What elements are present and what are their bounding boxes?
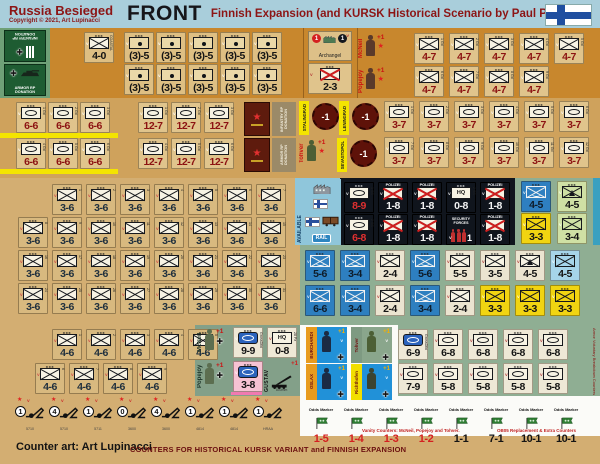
vanity-richthofen[interactable]: Richthofen+1V✚ — [351, 364, 392, 400]
counter-5-6[interactable]: xxxV5-6 — [305, 250, 335, 281]
soviet-flag-icon — [454, 417, 469, 429]
counter-3-7[interactable]: xxxV5 Gd3-7 — [524, 101, 554, 132]
odds-marker-7-1[interactable]: Odds Marker7-1 — [480, 398, 512, 431]
counter-4-6[interactable]: xxxV74-6 — [69, 363, 99, 394]
infantry-symbol — [520, 290, 540, 302]
kursk-vanity-popejoy: Popejoy+1✚ — [197, 361, 223, 393]
armor-symbol — [564, 142, 584, 154]
inf-46-row2: xxxV64-6xxxV74-6xxxV84-6xxxV94-6 — [35, 363, 167, 394]
counter-4-5[interactable]: xxxV4-5 — [550, 250, 580, 281]
infantry-symbol — [380, 255, 400, 267]
odds-marker-10-1[interactable]: Odds Marker10-1 — [515, 398, 547, 431]
counter-artillery[interactable]: ★V14814 — [184, 397, 216, 432]
finnish-status-cell[interactable]: AVAILABLERAIL — [296, 179, 341, 245]
combat-value: 3-7 — [560, 155, 588, 167]
vanity-tohver[interactable]: Tohver+1V✚ — [351, 327, 392, 363]
vanity-popejoy[interactable]: Popejoy+1★ — [358, 66, 384, 98]
counter-3-3[interactable]: xxxV3-3 — [521, 213, 551, 244]
counter-4-6[interactable]: xxxV44-6 — [154, 329, 184, 360]
counter-6-8[interactable]: xxxV6-8 — [503, 329, 533, 360]
counter-1-8[interactable]: POLIZEIV1-8 — [412, 214, 442, 245]
victory-marker: V — [197, 398, 200, 403]
odds-value: 1-1 — [445, 434, 477, 445]
unit-id: 15 — [282, 222, 286, 226]
guards-47-row2: xxxV6 Gd4-7xxxV7 Gd4-7xxxV8 Gd4-7xxxV9 G… — [414, 66, 549, 97]
counter-3-6[interactable]: xxxV203-6 — [154, 250, 184, 281]
counter-6-6[interactable]: xxxV5 Gd6-6 — [48, 138, 78, 169]
counter-6-6[interactable]: xxxV6-6 — [305, 285, 335, 316]
combat-value: 3-6 — [19, 268, 47, 280]
gold-bar-icon — [251, 124, 263, 126]
counter-12-7[interactable]: xxxV4 Gd12-7 — [138, 138, 168, 169]
ss-row1: xxxV1 SS8-9POLIZEIV1-8POLIZEIV1-8xxxVHQ2… — [344, 182, 510, 213]
counter-3-5[interactable]: xxxV(3)-5 — [220, 64, 250, 95]
counter-3-7[interactable]: xxxV3 Gd3-7 — [454, 101, 484, 132]
combat-value: 3-7 — [490, 119, 518, 131]
unit-id: 14 — [248, 222, 252, 226]
counter-2-4[interactable]: xxxV2-4 — [375, 250, 405, 281]
armor-symbol — [238, 366, 258, 378]
counter-2-4[interactable]: xxxV2-4 — [445, 285, 475, 316]
counter-3-4[interactable]: xxxV3-4 — [410, 285, 440, 316]
counter-3-7[interactable]: xxxV1 Gd3-7 — [384, 101, 414, 132]
infantry-symbol — [227, 189, 247, 201]
counter-3-6[interactable]: xxxV33-6 — [120, 184, 150, 215]
inf-36-row4: xxxV243-6xxxV253-6xxxV263-6xxxV273-6xxxV… — [18, 283, 286, 314]
caliber-label: 800mm — [276, 388, 287, 392]
counter-1-8[interactable]: POLIZEIV1-8 — [480, 214, 510, 245]
replacement-value: 0 — [117, 406, 128, 417]
armor-symbol — [53, 107, 73, 119]
counter-4-5[interactable]: xxxV4-5 — [557, 181, 587, 212]
counter-3-6[interactable]: xxxV183-6 — [86, 250, 116, 281]
soviet-flag-icon — [349, 417, 364, 429]
divider-1 — [303, 28, 304, 98]
counter-3-6[interactable]: xxxV313-6 — [256, 283, 286, 314]
counter-3-6[interactable]: xxxV23-6 — [86, 184, 116, 215]
counter-3-4[interactable]: xxxV3-4 — [557, 213, 587, 244]
counter-5-8[interactable]: xxxV5-8 — [538, 363, 568, 394]
counter-4-7[interactable]: xxxV9 Gd4-7 — [519, 66, 549, 97]
infantry-crossed-symbol — [485, 187, 505, 199]
unit-id: 5 Gd — [550, 106, 554, 114]
counter-3-5[interactable]: xxxV(3)-5 — [188, 32, 218, 63]
counter-4-7[interactable]: xxxV8 Gd4-7 — [484, 66, 514, 97]
siege-marker[interactable]: -1 — [351, 103, 377, 131]
guards-47-row1: xxxV1 Gd4-7xxxV2 Gd4-7xxxV3 Gd4-7xxxV4 G… — [414, 33, 584, 64]
unit-id: 21 — [214, 255, 218, 259]
vanity-name: Richthofen — [354, 371, 359, 394]
vanity-tohver[interactable]: Tohver+1★ — [299, 138, 335, 170]
combat-value: 4-7 — [415, 84, 443, 96]
rp-donation-counter[interactable]: ✚INFANTRY RP DONATION — [4, 30, 46, 62]
red-star-icon: ★ — [253, 113, 262, 122]
odds-marker-1-1[interactable]: Odds Marker1-1 — [445, 398, 477, 431]
counter-5-6[interactable]: xxxV5-6 — [410, 250, 440, 281]
gold-bar-icon — [251, 160, 263, 162]
naval-infantry-symbol — [415, 290, 435, 302]
combat-value: 4-6 — [104, 381, 132, 393]
combat-value: 12-7 — [205, 156, 233, 168]
combat-value: 4-7 — [485, 84, 513, 96]
counter-5-5[interactable]: xxxV5-5 — [445, 250, 475, 281]
counter-3-6[interactable]: xxxV283-6 — [154, 283, 184, 314]
red-star-icon: ★ — [319, 149, 325, 155]
combat-value: 3-6 — [19, 235, 47, 247]
infantry-symbol — [91, 288, 111, 300]
counter-3-5[interactable]: xxxV(3)-5 — [124, 32, 154, 63]
counter-3-6[interactable]: xxxV73-6 — [256, 184, 286, 215]
infantry-symbol — [193, 255, 213, 267]
sheet-subtitle: Finnish Expansion (and KURSK Historical … — [211, 8, 588, 20]
counter-7-9[interactable]: xxxV7-9 — [398, 363, 428, 394]
counter-6-9[interactable]: xxxVGrossDtld6-9 — [398, 329, 428, 360]
unit-id: 18 — [112, 255, 116, 259]
combat-value: 6-6 — [81, 120, 109, 132]
infantry-symbol — [454, 38, 474, 50]
counter-3-6[interactable]: xxxV173-6 — [52, 250, 82, 281]
combat-value: 3-6 — [189, 301, 217, 313]
infantry-symbol — [454, 71, 474, 83]
counter-3-3[interactable]: xxxV3-3 — [480, 285, 510, 316]
combat-value: 3-6 — [223, 235, 251, 247]
counter-4-6[interactable]: xxxV84-6 — [103, 363, 133, 394]
counter-3-6[interactable]: xxxV123-6 — [154, 217, 184, 248]
gear-icon: -1 — [312, 103, 339, 130]
counter-3-6[interactable]: xxxV53-6 — [188, 184, 218, 215]
odds-value: 10-1 — [550, 434, 582, 445]
counter-3-6[interactable]: xxxV243-6 — [18, 283, 48, 314]
counter-3-6[interactable]: xxxV223-6 — [222, 250, 252, 281]
counter-3-5[interactable]: xxxV(3)-5 — [220, 32, 250, 63]
counter-3-6[interactable]: xxxV213-6 — [188, 250, 218, 281]
counter-artillery[interactable]: ★V14814 — [218, 397, 250, 432]
combat-value: 3-6 — [87, 268, 115, 280]
unit-id: 1 Gd — [164, 107, 168, 115]
counter-3-3[interactable]: xxxV3-3 — [515, 285, 545, 316]
counter-3-5[interactable]: xxxV(3)-5 — [124, 64, 154, 95]
brand-block: Russia Besieged Copyright © 2021, Art Lu… — [0, 4, 127, 24]
counter-3-6[interactable]: xxxV43-6 — [154, 184, 184, 215]
odds-value: 7-1 — [480, 434, 512, 445]
unit-id: 4 — [180, 334, 184, 336]
bonus-label: +1 — [383, 329, 390, 335]
counter-9-9[interactable]: xxxVGrossDtld9-9 — [233, 327, 263, 358]
counter-12-7[interactable]: xxxV1 Gd12-7 — [138, 102, 168, 133]
counter-3-7[interactable]: xxxV8 Gd3-7 — [419, 137, 449, 168]
counter-4-7[interactable]: xxxV3 Gd4-7 — [484, 33, 514, 64]
vanity-name-strip: BURCHARDI — [306, 327, 317, 363]
breakdown-row2: xxxV7-9xxxV5-8xxxV5-8xxxV5-8xxxV5-8 — [398, 363, 568, 394]
counter-3-3[interactable]: xxxV3-3 — [550, 285, 580, 316]
donation-counter[interactable]: ★ARMOR RP DONATION — [244, 138, 296, 172]
vanity-figure-cell: +1V✚ — [317, 364, 347, 400]
counter-2-3[interactable]: xxxV2-3 — [308, 63, 352, 94]
tank-top-icon — [193, 37, 213, 49]
counter-12-7[interactable]: xxxV6 Gd12-7 — [204, 138, 234, 169]
armor-symbol — [238, 332, 258, 344]
counter-gustav[interactable]: GUSTAV+1800mm — [264, 361, 298, 392]
unit-id: 4 Gd — [42, 143, 46, 151]
unit-id: 1 Gd — [410, 106, 414, 114]
siege-row2: Tohver+1★SEVASTOPOL-1 — [299, 138, 375, 172]
counter-6-8[interactable]: xxxV6-8 — [538, 329, 568, 360]
counter-3-7[interactable]: xxxV9 Gd3-7 — [454, 137, 484, 168]
soviet-flag-icon — [384, 417, 399, 429]
counter-3-6[interactable]: xxxV273-6 — [120, 283, 150, 314]
counter-4-5[interactable]: xxxV4-5 — [521, 181, 551, 212]
tank-top-icon — [257, 69, 277, 81]
counter-0-8[interactable]: xxxVHQ28 Pz0-8 — [267, 327, 297, 358]
replacement-value: 4 — [151, 406, 162, 417]
counter-3-6[interactable]: xxxV133-6 — [188, 217, 218, 248]
unit-id: 5711 — [82, 427, 114, 431]
counter-3-6[interactable]: xxxV113-6 — [120, 217, 150, 248]
counter-1-8[interactable]: POLIZEIV1-8 — [378, 214, 408, 245]
counter-3-5[interactable]: xxxV(3)-5 — [156, 64, 186, 95]
counter-artillery[interactable]: ★V1HRAA — [252, 397, 284, 432]
combat-value: 6-6 — [49, 120, 77, 132]
counter-3-6[interactable]: xxxV153-6 — [256, 217, 286, 248]
vanity-name: Tohver — [299, 138, 305, 168]
counter-3-5[interactable]: xxxV(3)-5 — [252, 32, 282, 63]
city-strip-stalingrad: STALINGRAD — [299, 101, 309, 135]
counter-3-6[interactable]: xxxV303-6 — [222, 283, 252, 314]
counter-3-7[interactable]: xxxV6 Gd3-7 — [559, 101, 589, 132]
counter-3-5[interactable]: xxxV(3)-5 — [188, 64, 218, 95]
german-cross-icon: ✚ — [16, 49, 23, 56]
infantry-symbol — [227, 222, 247, 234]
vanity-name: Tohver — [354, 338, 359, 352]
counter-4-7[interactable]: xxxV4 Gd4-7 — [519, 33, 549, 64]
counter-3-6[interactable]: xxxV83-6 — [18, 217, 48, 248]
counter-4-7[interactable]: xxxV6 Gd4-7 — [414, 66, 444, 97]
odds-marker-label: Odds Marker — [519, 407, 543, 412]
counter-3-4[interactable]: xxxV3-4 — [340, 285, 370, 316]
bonus-label: +1 — [318, 140, 325, 146]
counter-6-6[interactable]: xxxV1 Gd6-6 — [16, 102, 46, 133]
vanity-mcneil[interactable]: McNeil+1★ — [358, 33, 384, 65]
counter-5-8[interactable]: xxxV5-8 — [468, 363, 498, 394]
combat-value: 3-7 — [385, 155, 413, 167]
bonus-label: +1 — [377, 35, 384, 41]
donation-counter[interactable]: ★INFANTRY RP DONATION — [244, 102, 296, 136]
counter-4-6[interactable]: xxxV14-6 — [52, 329, 82, 360]
unit-id: 30 — [248, 288, 252, 292]
counter-1-8[interactable]: POLIZEIV1-8 — [378, 182, 408, 213]
combat-value: 3-6 — [121, 301, 149, 313]
finland-flag-icon — [313, 199, 328, 209]
counter-archangel[interactable]: 11VArchangel — [308, 31, 352, 61]
odds-marker-label: Odds Marker — [484, 407, 508, 412]
vanity-popejoy[interactable]: Popejoy+1✚ — [197, 361, 223, 393]
armor-symbol — [543, 334, 563, 346]
unit-id: 4814 — [184, 427, 216, 431]
guards-127-row1: xxxV1 Gd12-7xxxV2 Gd12-7xxxV3 Gd12-7 — [138, 102, 234, 133]
combat-value: 4-6 — [155, 347, 183, 359]
odds-marker-1-5[interactable]: Odds Marker1-5 — [305, 398, 337, 431]
finnish-armor-row1: xxxV(3)-5xxxV(3)-5xxxV(3)-5xxxV(3)-5xxxV… — [124, 32, 282, 63]
counter-artillery[interactable]: ★V15711 — [82, 397, 114, 432]
combat-value: (3)-5 — [189, 82, 217, 94]
odds-marker-10-1[interactable]: Odds Marker10-1 — [550, 398, 582, 431]
counter-3-7[interactable]: xxxV7 Gd3-7 — [384, 137, 414, 168]
counter-6-6[interactable]: xxxV6 Gd6-6 — [80, 138, 110, 169]
unit-id: 5 Gd — [580, 38, 584, 46]
counter-artillery[interactable]: ★V43600 — [150, 397, 182, 432]
combat-value: 1-8 — [379, 200, 407, 212]
counter-6-6[interactable]: xxxV2 Gd6-6 — [48, 102, 78, 133]
combat-value: 3-6 — [223, 268, 251, 280]
counter-3-7[interactable]: xxxV4 Gd3-7 — [489, 101, 519, 132]
vanity-mcneil[interactable]: McNeil+1✚ — [197, 327, 223, 359]
counter-artillery[interactable]: ★V15710 — [14, 397, 46, 432]
mountain-infantry-symbol — [520, 255, 540, 267]
counter-5-8[interactable]: xxxV5-8 — [503, 363, 533, 394]
combat-value: 9-9 — [234, 345, 262, 357]
unit-id: 6 Gd — [440, 71, 444, 79]
infantry-symbol — [142, 368, 162, 380]
soviet-flag-icon — [419, 417, 434, 429]
counter-3-6[interactable]: xxxV253-6 — [52, 283, 82, 314]
unit-id: 3 — [146, 334, 150, 336]
counter-3-6[interactable]: xxxV93-6 — [52, 217, 82, 248]
combat-value: 3-7 — [525, 155, 553, 167]
infantry-symbol — [40, 368, 60, 380]
counter-4-7[interactable]: xxxV1 Gd4-7 — [414, 33, 444, 64]
combat-value: 3-5 — [481, 268, 509, 280]
railgun-art: +1800mm — [270, 361, 298, 392]
unit-id: 3600 — [116, 427, 148, 431]
counter-artillery[interactable]: ★V03600 — [116, 397, 148, 432]
soldier-figure-icon — [205, 334, 214, 350]
vanity-oslax[interactable]: OSLAX+1V✚ — [306, 364, 347, 400]
tank-top-icon — [129, 69, 149, 81]
counter-12-7[interactable]: xxxV3 Gd12-7 — [204, 102, 234, 133]
siege-marker[interactable]: -1 — [311, 103, 337, 131]
combat-value: 3-6 — [87, 202, 115, 214]
counter-1-8[interactable]: POLIZEIV1-8 — [480, 182, 510, 213]
counter-6-8[interactable]: xxxV6-8 — [468, 329, 498, 360]
counter-0-8[interactable]: xxxVHQ2 SS0-8 — [446, 182, 476, 213]
counter-12-7[interactable]: xxxV2 Gd12-7 — [171, 102, 201, 133]
counter-3-8[interactable]: xxxV3-8 — [233, 361, 263, 392]
counter-4-6[interactable]: xxxV34-6 — [120, 329, 150, 360]
unit-id: 8 Gd — [445, 142, 449, 150]
officer-figure-icon — [322, 373, 331, 389]
counter-4-7[interactable]: xxxV2 Gd4-7 — [449, 33, 479, 64]
odds-marker-1-4[interactable]: Odds Marker1-4 — [340, 398, 372, 431]
armor-symbol — [543, 368, 563, 380]
red-star-counter: ★ — [244, 138, 270, 172]
unit-id: 5710 — [48, 427, 80, 431]
counter-3-6[interactable]: xxxV103-6 — [86, 217, 116, 248]
allied-row1: xxxV4-5xxxV4-5 — [521, 181, 587, 212]
counter-3-6[interactable]: xxxV193-6 — [120, 250, 150, 281]
counter-5-8[interactable]: xxxV5-8 — [433, 363, 463, 394]
counter-security-forces[interactable]: SECURITY FORCESV1 — [446, 214, 476, 245]
counter-2-4[interactable]: xxxV2-4 — [375, 285, 405, 316]
counter-artillery[interactable]: ★V45710 — [48, 397, 80, 432]
counter-3-6[interactable]: xxxV143-6 — [222, 217, 252, 248]
counter-6-6[interactable]: xxxV3 Gd6-6 — [80, 102, 110, 133]
victory-marker: V — [385, 338, 388, 343]
counter-1-8[interactable]: POLIZEIV1-8 — [412, 182, 442, 213]
counter-12-7[interactable]: xxxV5 Gd12-7 — [171, 138, 201, 169]
city-label: LENINGRAD — [342, 106, 347, 131]
unit-id: 2 — [112, 334, 116, 336]
infantry-symbol — [559, 38, 579, 50]
armor-symbol — [529, 106, 549, 118]
armor-symbol — [508, 334, 528, 346]
odds-value: 10-1 — [515, 434, 547, 445]
counter-3-6[interactable]: xxxV163-6 — [18, 250, 48, 281]
armor-symbol — [85, 107, 105, 119]
counter-3-7[interactable]: xxxV10 Gd3-7 — [489, 137, 519, 168]
infantry-symbol — [23, 255, 43, 267]
finland-flag-icon — [545, 4, 592, 26]
counter-4-6[interactable]: xxxV24-6 — [86, 329, 116, 360]
counter-3-6[interactable]: xxxV263-6 — [86, 283, 116, 314]
counter-4-6[interactable]: xxxV94-6 — [137, 363, 167, 394]
counter-3-7[interactable]: xxxV11 Gd3-7 — [524, 137, 554, 168]
counter-3-5[interactable]: xxxV(3)-5 — [252, 64, 282, 95]
armor-symbol — [403, 334, 423, 346]
vanity-burchardi[interactable]: BURCHARDI+1V✚ — [306, 327, 347, 363]
siege-marker[interactable]: -1 — [349, 140, 375, 168]
odds-marker-1-2[interactable]: Odds Marker1-2 — [410, 398, 442, 431]
combat-value: 3-4 — [558, 231, 586, 243]
vanity-name-strip: OSLAX — [306, 364, 317, 400]
infantry-symbol — [261, 222, 281, 234]
combat-value: 2-4 — [376, 303, 404, 315]
counter-4-6[interactable]: xxxV64-6 — [35, 363, 65, 394]
odds-marker-1-3[interactable]: Odds Marker1-3 — [375, 398, 407, 431]
counter-6-8[interactable]: xxxV6-8 — [433, 329, 463, 360]
counter-3-5[interactable]: xxxV(3)-5 — [156, 32, 186, 63]
unit-id: 4 Gd — [515, 106, 519, 114]
soldier-figure-icon — [307, 145, 316, 161]
counter-3-6[interactable]: xxxV293-6 — [188, 283, 218, 314]
replacement-value: 1 — [185, 406, 196, 417]
counter-6-8[interactable]: xxxV2 SS6-8 — [344, 214, 374, 245]
counter-3-6[interactable]: xxxV63-6 — [222, 184, 252, 215]
rp-donation-counter[interactable]: ✚ARMOR RP DONATION — [4, 64, 46, 96]
armor-symbol — [349, 187, 369, 199]
counter-3-5[interactable]: xxxV3-5 — [480, 250, 510, 281]
armor-symbol — [143, 143, 163, 155]
counter-3-4[interactable]: xxxV3-4 — [340, 250, 370, 281]
counter-4-7[interactable]: xxxV7 Gd4-7 — [449, 66, 479, 97]
vanity-grid-row1: BURCHARDI+1V✚Tohver+1V✚ — [306, 327, 392, 363]
counter-6-6[interactable]: xxxV4 Gd6-6 — [16, 138, 46, 169]
combat-value: 4-0 — [85, 50, 113, 62]
officer-figure-icon — [367, 336, 376, 352]
victory-marker: V — [346, 33, 349, 38]
armor-symbol — [424, 106, 444, 118]
counter-4-0[interactable]: xxxVCOASTAL4-0 — [84, 32, 114, 63]
counter-3-7[interactable]: xxxV2 Gd3-7 — [419, 101, 449, 132]
unit-id: 23 — [282, 255, 286, 259]
counter-3-6[interactable]: xxxV13-6 — [52, 184, 82, 215]
armor-symbol — [494, 106, 514, 118]
counter-4-5[interactable]: xxxV4-5 — [515, 250, 545, 281]
counter-3-6[interactable]: xxxV233-6 — [256, 250, 286, 281]
counter-8-9[interactable]: xxxV1 SS8-9 — [344, 182, 374, 213]
counter-3-7[interactable]: xxxV12 Gd3-7 — [559, 137, 589, 168]
counter-4-7[interactable]: xxxV5 Gd4-7 — [554, 33, 584, 64]
armor-symbol — [389, 106, 409, 118]
